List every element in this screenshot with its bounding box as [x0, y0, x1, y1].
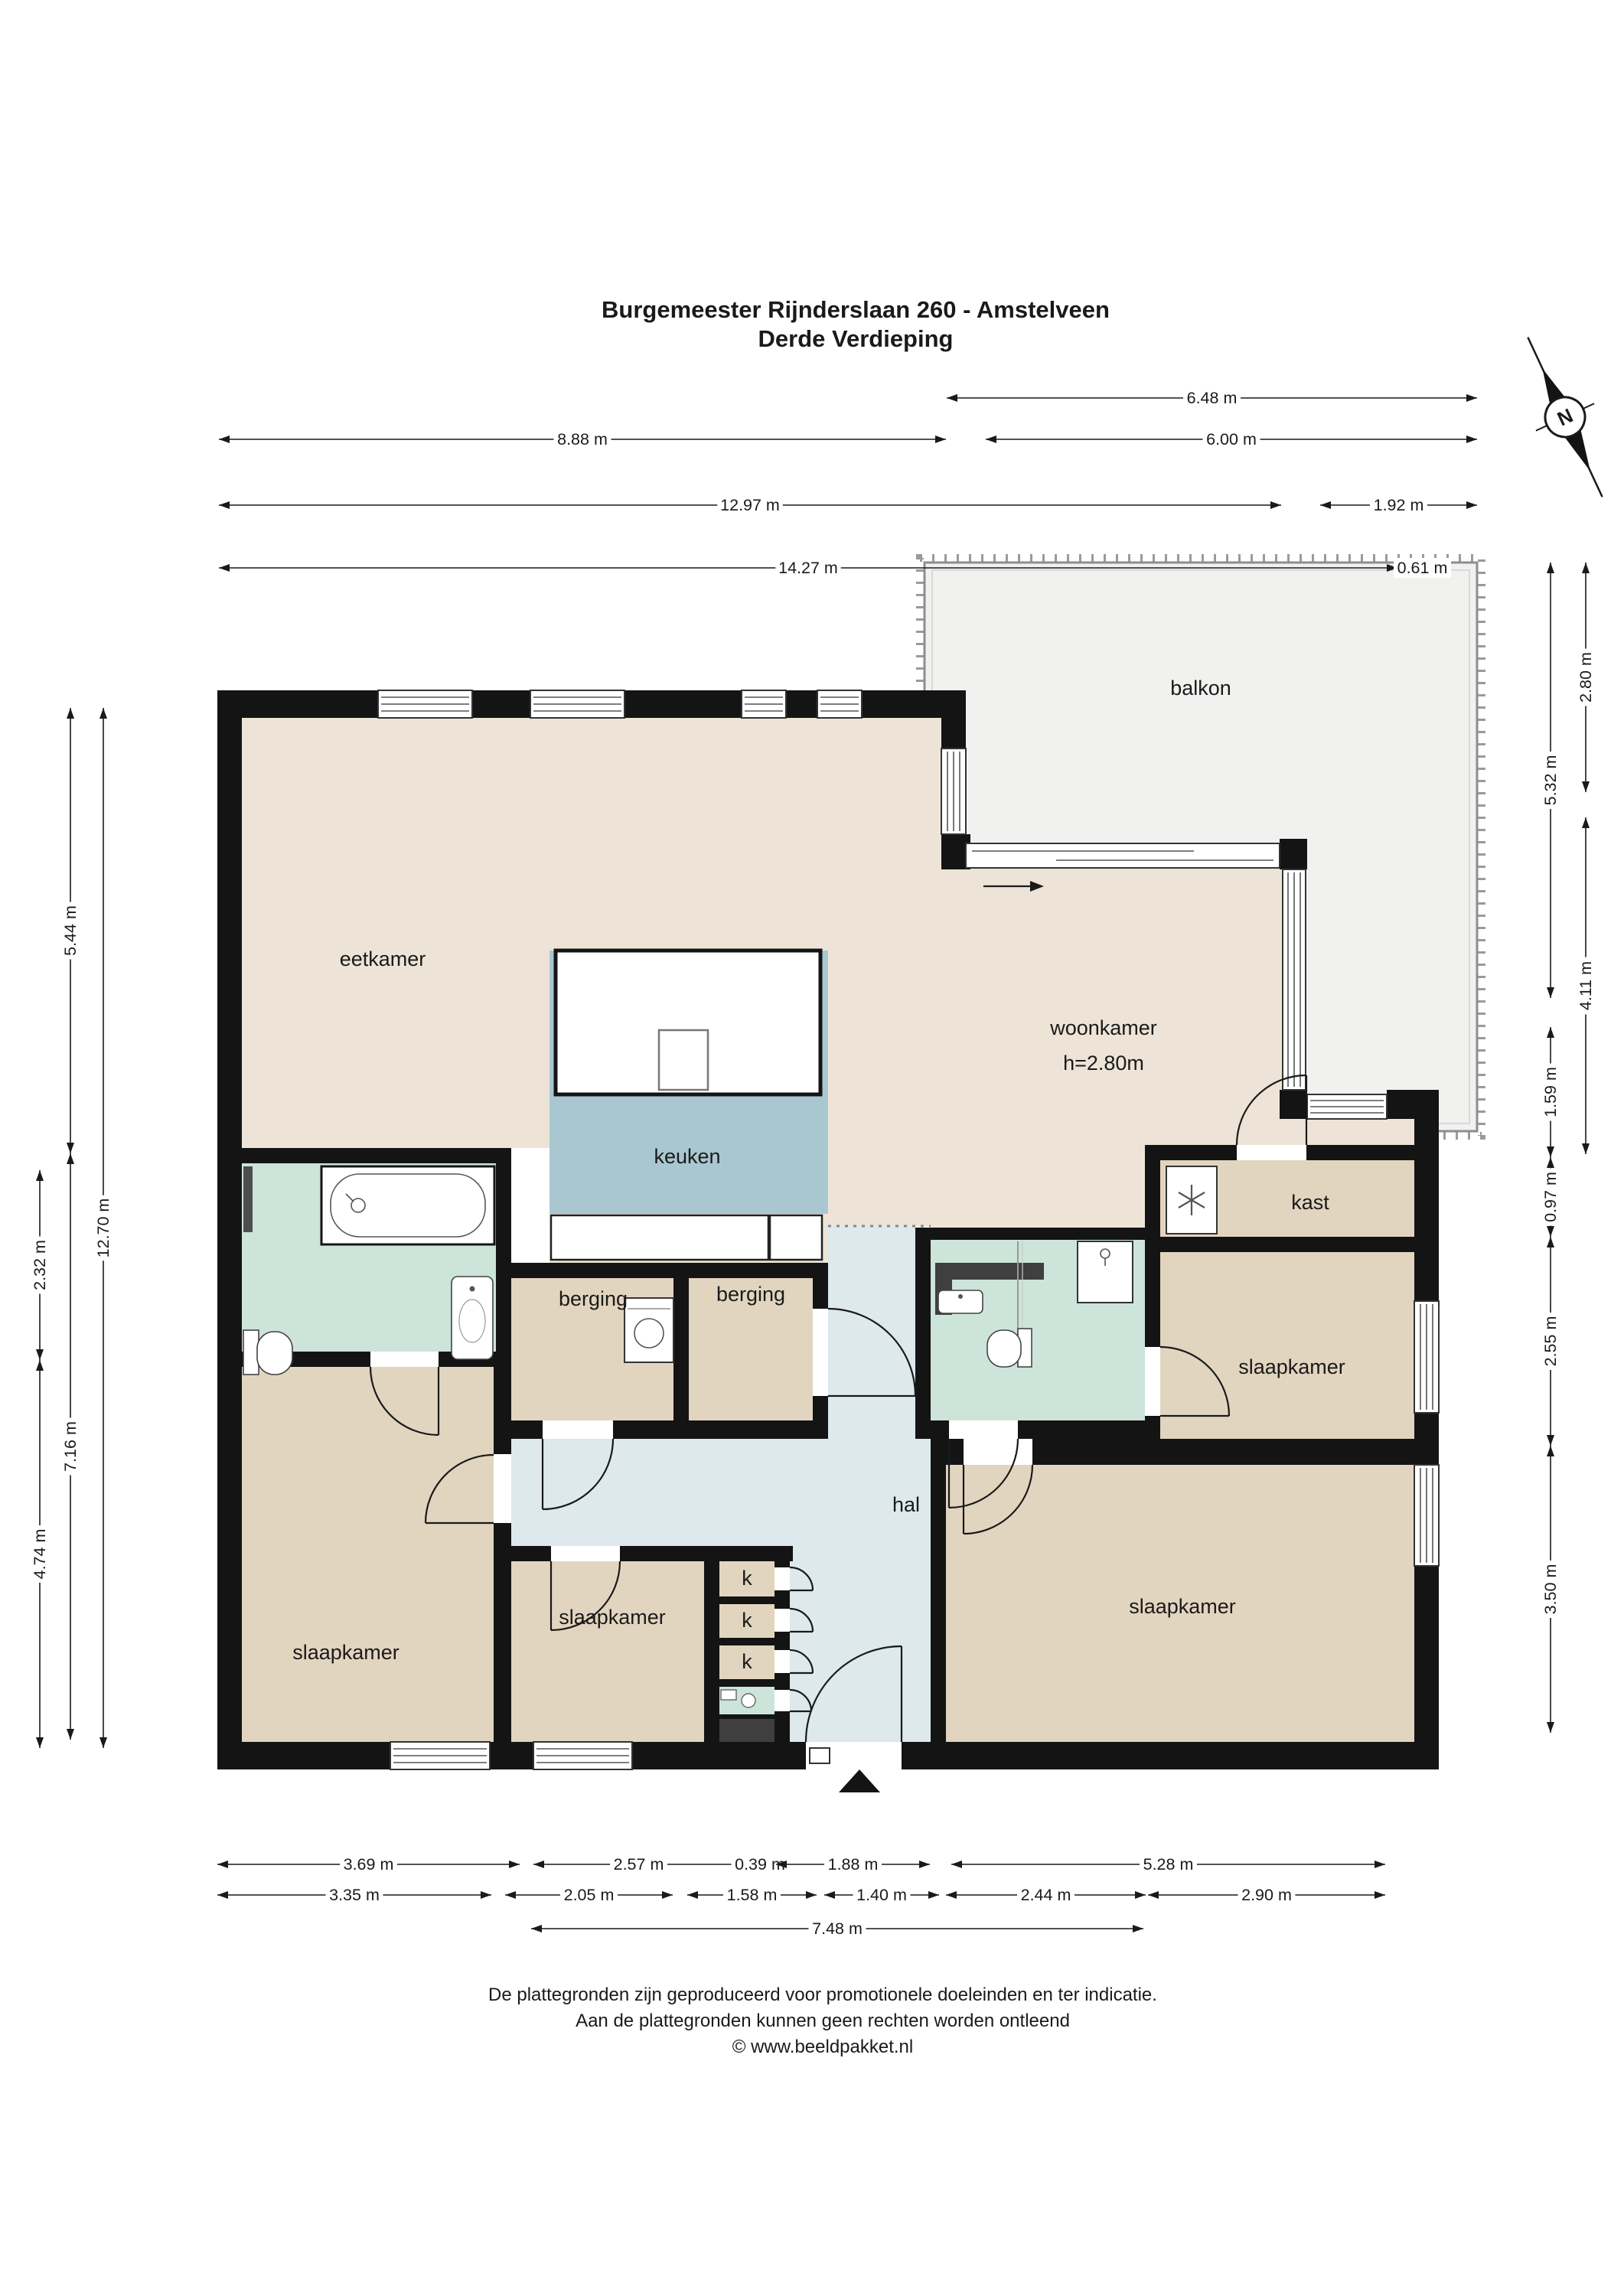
- dimension-2.80-29: 2.80 m: [1576, 563, 1596, 792]
- wall-interior: [511, 1263, 828, 1278]
- dimension-label: 6.00 m: [1206, 430, 1257, 448]
- dimension-label: 2.57 m: [614, 1855, 664, 1874]
- dimension-label: 12.97 m: [720, 496, 780, 514]
- dimension-6.00-2: 6.00 m: [986, 429, 1477, 449]
- wall-interior: [931, 1420, 949, 1439]
- page-title-line1: Burgemeester Rijnderslaan 260 - Amstelve…: [602, 296, 1110, 323]
- dimension-1.88-10: 1.88 m: [776, 1854, 930, 1874]
- wall-interior: [1145, 1416, 1160, 1439]
- wall-exterior-right: [1414, 1566, 1439, 1769]
- dimension-label: 1.58 m: [727, 1886, 778, 1904]
- wall-pier: [1280, 1090, 1307, 1119]
- room-label-woonkamer-height: h=2.80m: [1063, 1052, 1144, 1075]
- wall-interior: [613, 1420, 828, 1439]
- wall-interior: [620, 1546, 793, 1561]
- toilet-bathroom2: [987, 1329, 1032, 1367]
- dimension-label: 8.88 m: [557, 430, 608, 448]
- dimension-7.16-22: 7.16 m: [60, 1153, 80, 1740]
- wall-exterior-right: [1414, 1413, 1439, 1465]
- window-top-2: [530, 690, 624, 718]
- dimension-label: 7.16 m: [61, 1421, 80, 1472]
- wall-interior: [813, 1396, 828, 1420]
- room-label-kast-k3: k: [742, 1650, 752, 1673]
- dimension-label: 3.50 m: [1541, 1564, 1560, 1615]
- dimension-2.55-27: 2.55 m: [1541, 1237, 1560, 1446]
- wall-plumbing-shading: [243, 1166, 253, 1232]
- wall-interior: [1145, 1145, 1237, 1160]
- dimension-4.74-20: 4.74 m: [30, 1360, 50, 1748]
- dimension-1.92-4: 1.92 m: [1320, 495, 1477, 515]
- room-label-kast: kast: [1291, 1191, 1329, 1214]
- page-title-line2: Derde Verdieping: [758, 325, 954, 352]
- wall-interior: [719, 1714, 774, 1719]
- room-label-hal: hal: [892, 1493, 920, 1516]
- window-bottom-2: [533, 1742, 632, 1769]
- dimension-label: 1.59 m: [1541, 1067, 1560, 1117]
- wall-interior: [1145, 1228, 1160, 1347]
- window-right-small: [1307, 1094, 1387, 1119]
- dimension-5.44-21: 5.44 m: [60, 708, 80, 1153]
- wall-interior: [242, 1148, 511, 1163]
- dimension-5.32-24: 5.32 m: [1541, 563, 1560, 998]
- dimension-5.28-11: 5.28 m: [951, 1854, 1385, 1874]
- dimension-label: 3.35 m: [329, 1886, 380, 1904]
- room-label-berging-2: berging: [716, 1283, 785, 1306]
- dimension-1.58-14: 1.58 m: [687, 1885, 817, 1905]
- toilet-bathroom1: [243, 1330, 292, 1375]
- dimension-3.50-28: 3.50 m: [1541, 1446, 1560, 1733]
- wall-interior: [494, 1523, 511, 1742]
- dimension-label: 1.92 m: [1374, 496, 1424, 514]
- wall-interior: [719, 1679, 774, 1687]
- dimension-12.97-3: 12.97 m: [219, 495, 1281, 515]
- entrance-sidelight: [810, 1748, 830, 1763]
- dimension-3.69-7: 3.69 m: [217, 1854, 520, 1874]
- washing-machine: [624, 1298, 673, 1362]
- dimension-7.48-18: 7.48 m: [531, 1919, 1143, 1939]
- floorplan-canvas: Burgemeester Rijnderslaan 260 - Amstelve…: [0, 0, 1624, 2296]
- dimension-2.44-16: 2.44 m: [946, 1885, 1146, 1905]
- wall-interior: [1018, 1420, 1145, 1439]
- room-label-berging-1: berging: [559, 1287, 628, 1310]
- wall-interior: [1306, 1145, 1414, 1160]
- ventilation-unit: [1166, 1166, 1217, 1234]
- dimension-12.70-23: 12.70 m: [93, 708, 113, 1748]
- window-right-tall: [1283, 869, 1306, 1090]
- dimension-label: 2.44 m: [1021, 1886, 1071, 1904]
- room-label-balkon: balkon: [1170, 677, 1231, 700]
- wall-step: [941, 718, 966, 748]
- window-bedroom-right-top: [1414, 1301, 1439, 1413]
- floorplan-page: Burgemeester Rijnderslaan 260 - Amstelve…: [0, 0, 1624, 2296]
- wall-interior: [719, 1596, 774, 1604]
- room-label-kast-k1: k: [742, 1567, 752, 1590]
- room-label-eetkamer: eetkamer: [340, 947, 426, 970]
- boiler-unit: [1078, 1241, 1133, 1303]
- wall-pier: [1280, 839, 1307, 869]
- wall-interior: [704, 1561, 719, 1742]
- footer-line3: © www.beeldpakket.nl: [732, 2037, 913, 2057]
- room-label-slaapkamer-rechtsonder: slaapkamer: [1129, 1595, 1236, 1618]
- dimension-4.11-30: 4.11 m: [1576, 817, 1596, 1154]
- dimension-label: 4.11 m: [1577, 961, 1595, 1010]
- wall-interior: [1145, 1160, 1160, 1228]
- dimension-0.61-6: 0.61 m: [1394, 558, 1451, 578]
- wall-interior: [719, 1638, 774, 1645]
- window-top-4: [817, 690, 862, 718]
- dimension-label: 2.32 m: [31, 1240, 49, 1290]
- dimension-label: 1.88 m: [828, 1855, 879, 1874]
- wall-exterior-right: [1414, 1090, 1439, 1301]
- window-top-3: [742, 690, 786, 718]
- room-label-woonkamer: woonkamer: [1049, 1016, 1157, 1039]
- room-label-keuken: keuken: [654, 1145, 720, 1168]
- dimension-label: 0.61 m: [1397, 559, 1448, 577]
- dimension-2.32-19: 2.32 m: [30, 1170, 50, 1360]
- entrance-arrow-icon: [839, 1769, 880, 1792]
- dimension-label: 6.48 m: [1187, 389, 1238, 407]
- window-bottom-1: [390, 1742, 490, 1769]
- dimension-1.59-25: 1.59 m: [1541, 1027, 1560, 1157]
- window-step: [941, 748, 966, 834]
- room-label-slaapkamer-midden: slaapkamer: [559, 1606, 666, 1629]
- dimension-2.90-17: 2.90 m: [1148, 1885, 1385, 1905]
- kitchen-counter: [551, 1215, 768, 1260]
- room-label-slaapkamer-links: slaapkamer: [292, 1641, 399, 1664]
- dimension-2.57-8: 2.57 m: [533, 1854, 744, 1874]
- dimension-label: 5.32 m: [1541, 755, 1560, 806]
- wall-interior: [494, 1367, 511, 1454]
- dimension-label: 2.55 m: [1541, 1316, 1560, 1367]
- wall-interior: [1032, 1439, 1414, 1465]
- dimension-8.88-1: 8.88 m: [219, 429, 946, 449]
- dimension-label: 5.44 m: [61, 905, 80, 956]
- wall-interior: [931, 1228, 1145, 1240]
- footer-line2: Aan de plattegronden kunnen geen rechten…: [576, 2011, 1070, 2031]
- footer-line1: De plattegronden zijn geproduceerd voor …: [488, 1985, 1157, 2005]
- bathtub: [321, 1166, 494, 1244]
- dimension-label: 5.28 m: [1143, 1855, 1194, 1874]
- window-bedroom-right-bottom: [1414, 1465, 1439, 1566]
- window-top-1: [378, 690, 472, 718]
- dimension-label: 1.40 m: [856, 1886, 907, 1904]
- dimension-label: 2.05 m: [564, 1886, 615, 1904]
- wall-interior: [1145, 1237, 1414, 1252]
- room-label-kast-k2: k: [742, 1609, 752, 1632]
- dimension-label: 7.48 m: [812, 1919, 863, 1938]
- wall-interior: [511, 1420, 543, 1439]
- dimension-0.97-26: 0.97 m: [1541, 1157, 1560, 1237]
- dimension-label: 0.97 m: [1541, 1172, 1560, 1222]
- wall-interior: [496, 1163, 511, 1367]
- washbasin-bathroom1: [452, 1277, 493, 1359]
- compass-icon: N: [1498, 324, 1624, 510]
- dimension-2.05-13: 2.05 m: [505, 1885, 673, 1905]
- wall-interior: [915, 1228, 931, 1439]
- sliding-door-balcony[interactable]: [966, 843, 1280, 868]
- floor-bedroom-middle: [511, 1561, 704, 1742]
- room-label-slaapkamer-rechtsboven: slaapkamer: [1238, 1355, 1345, 1378]
- wall-exterior-left: [217, 690, 242, 1769]
- dimension-label: 3.69 m: [344, 1855, 394, 1874]
- dimension-6.48-0: 6.48 m: [947, 388, 1477, 408]
- dimension-label: 12.70 m: [94, 1199, 113, 1258]
- kitchen-sink: [659, 1030, 708, 1090]
- floor-bedroom-left: [242, 1367, 494, 1742]
- wall-pier: [1387, 1090, 1414, 1119]
- dimension-label: 14.27 m: [778, 559, 838, 577]
- dimension-label: 4.74 m: [31, 1529, 49, 1580]
- wall-interior: [511, 1546, 551, 1561]
- wall-interior: [673, 1278, 689, 1420]
- dimension-1.40-15: 1.40 m: [824, 1885, 939, 1905]
- washbasin-bathroom2: [938, 1290, 983, 1313]
- kitchen-appliance: [770, 1215, 822, 1260]
- wall-interior: [931, 1439, 946, 1742]
- dimension-3.35-12: 3.35 m: [217, 1885, 491, 1905]
- dimension-label: 2.90 m: [1241, 1886, 1292, 1904]
- wall-interior: [813, 1278, 828, 1309]
- shaft: [719, 1719, 774, 1742]
- dimension-label: 2.80 m: [1577, 652, 1595, 703]
